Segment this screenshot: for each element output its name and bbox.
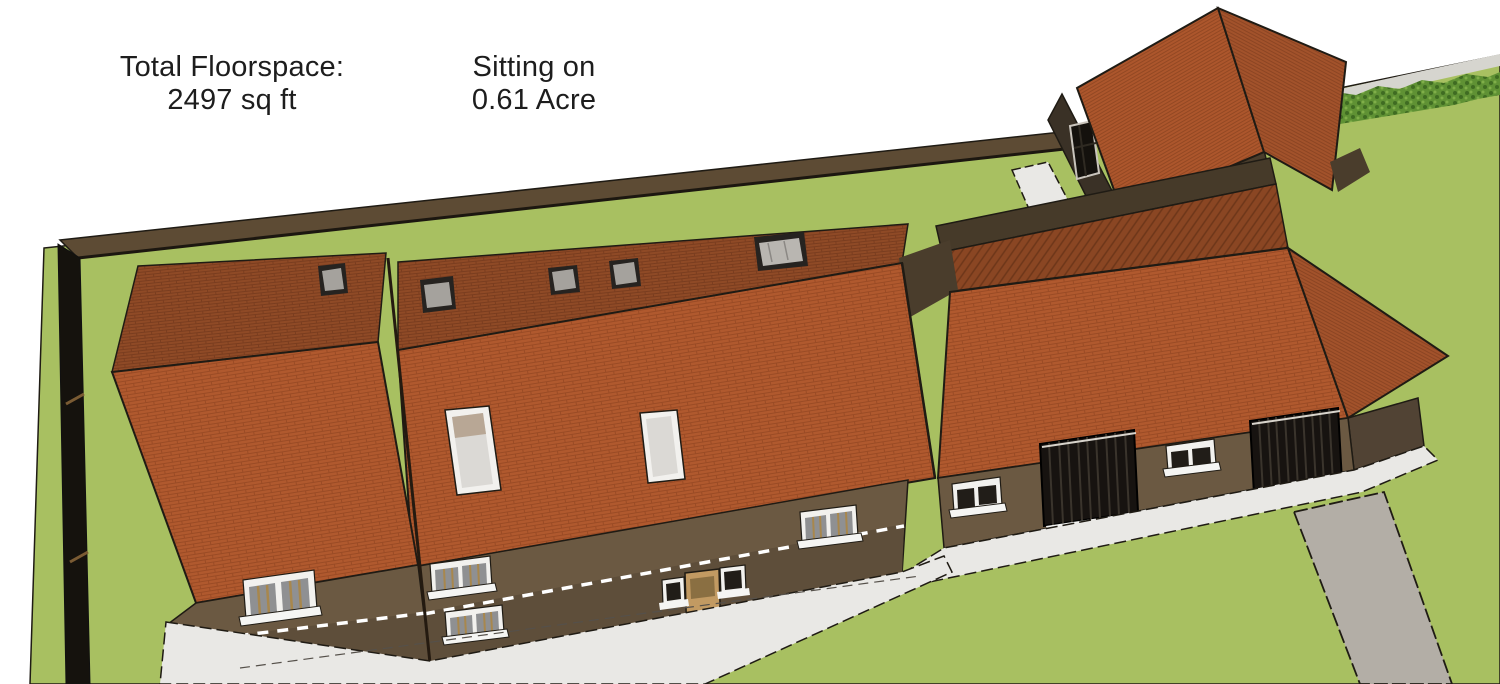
skylight-large [754, 232, 808, 271]
window-beside-door-left [659, 577, 689, 610]
roof-window [640, 410, 685, 483]
skylight [548, 265, 580, 295]
window-pane [249, 583, 277, 616]
skylight [609, 258, 641, 289]
window-pane [830, 511, 853, 537]
plot-size-label: Sitting on [384, 51, 684, 84]
plot-size-value: 0.61 Acre [384, 84, 684, 117]
window-first-floor-right [797, 505, 863, 549]
skylight-glass [552, 269, 576, 291]
window-pane [805, 515, 827, 541]
window-pane [666, 582, 681, 601]
skylight-glass [424, 282, 452, 308]
skylight [420, 276, 456, 313]
window-pane [462, 563, 487, 587]
skylight-glass [613, 262, 637, 285]
skylight [318, 263, 348, 296]
floorspace-label: Total Floorspace: [82, 51, 382, 84]
floorspace-value: 2497 sq ft [82, 84, 382, 117]
window-wing-left [949, 477, 1007, 518]
door-top-panel [690, 576, 715, 599]
floorspace-annotation: Total Floorspace: 2497 sq ft [82, 51, 382, 117]
window-pane [435, 567, 459, 591]
window-pane [978, 485, 997, 505]
window-pane [957, 488, 975, 509]
window-pane [476, 611, 499, 633]
skylight-glass [322, 268, 344, 291]
plot-size-annotation: Sitting on 0.61 Acre [384, 51, 684, 117]
render-canvas: Total Floorspace: 2497 sq ft Sitting on … [0, 0, 1500, 684]
window-pane [724, 570, 742, 590]
skylight-glass [759, 238, 803, 266]
window-wing-right [1163, 439, 1221, 477]
window-pane [281, 578, 310, 611]
window-beside-door-right [717, 565, 750, 599]
roof-window-top-pane [452, 413, 486, 438]
window-pane [1192, 447, 1211, 465]
